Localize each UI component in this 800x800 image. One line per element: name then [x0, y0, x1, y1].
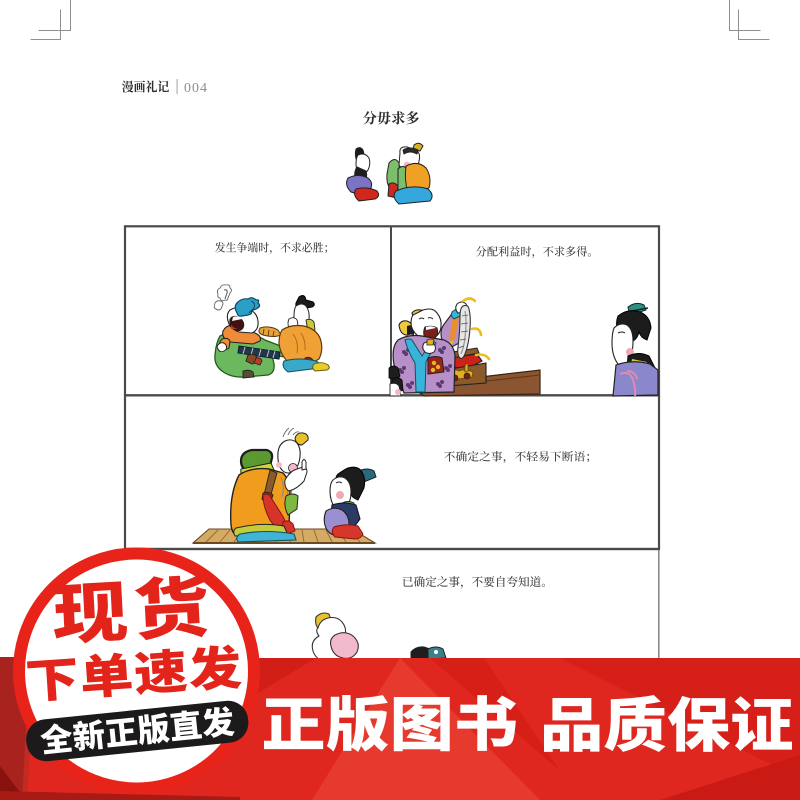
svg-text:004: 004	[184, 81, 208, 96]
